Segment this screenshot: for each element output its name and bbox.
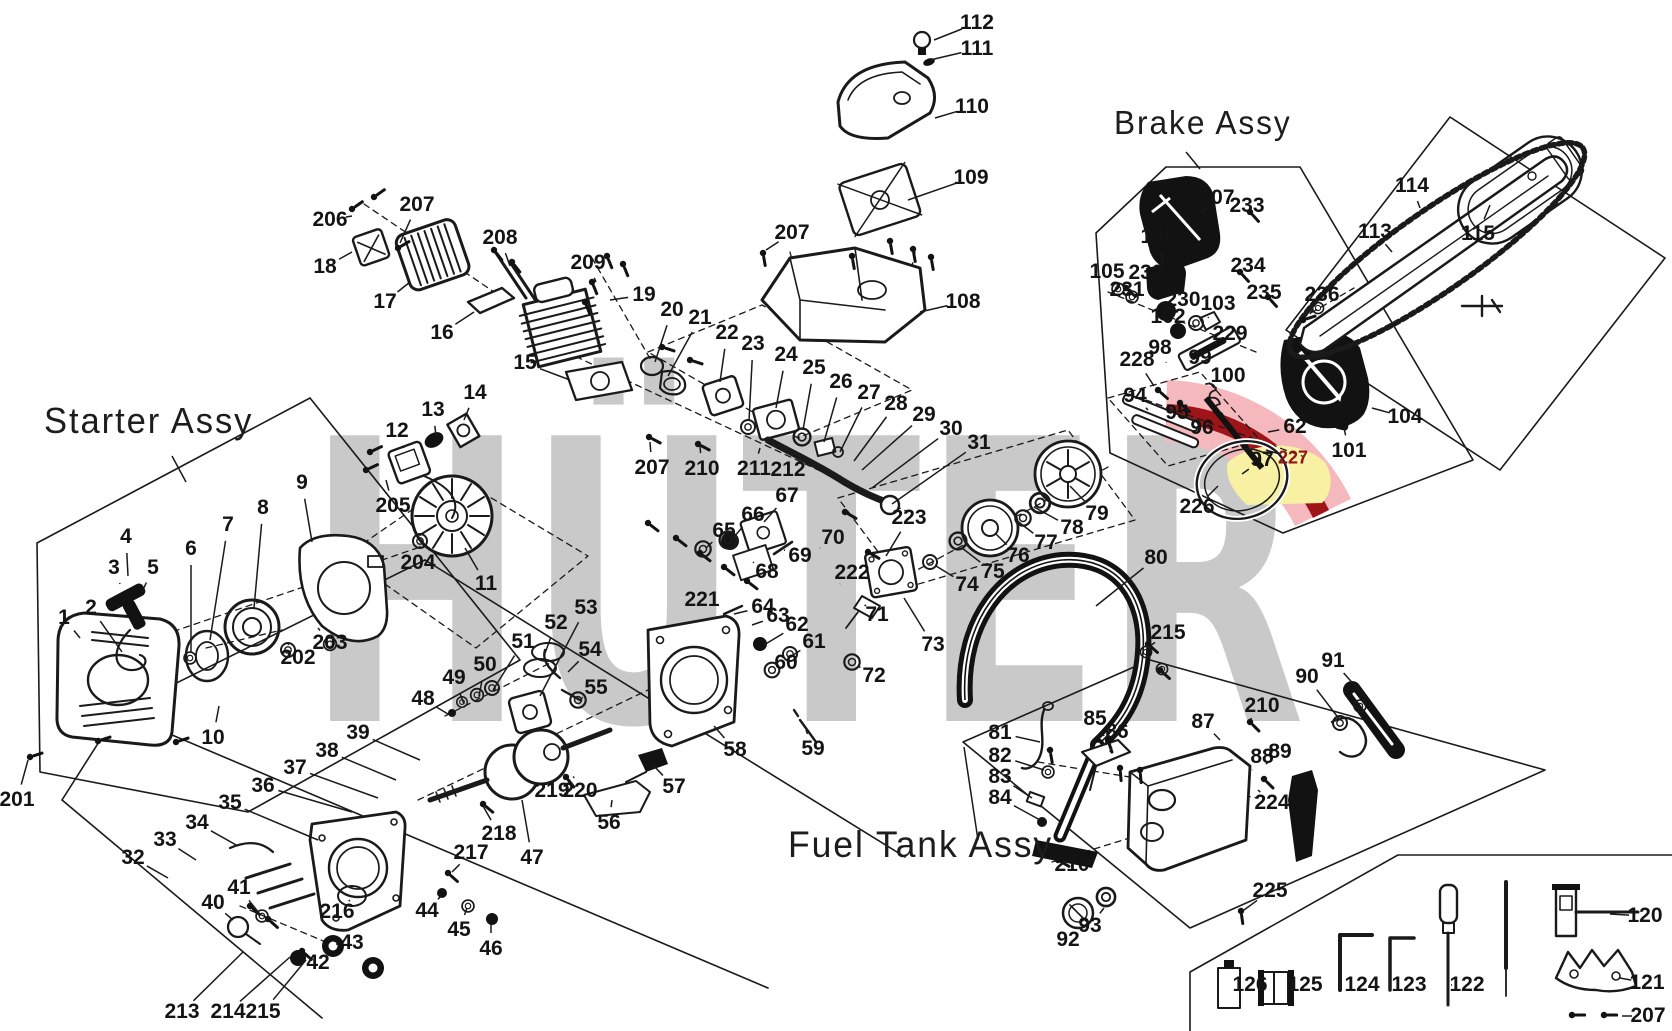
assembly-label-fuel-tank-assy: Fuel Tank Assy: [788, 824, 1053, 866]
part-label-8: 8: [257, 496, 269, 520]
part-label-223: 223: [891, 506, 926, 530]
part-label-90: 90: [1295, 665, 1318, 689]
part-label-108: 108: [945, 290, 980, 314]
part-label-80: 80: [1144, 546, 1167, 570]
part-label-210: 210: [684, 457, 719, 481]
part-label-122: 122: [1449, 973, 1484, 997]
part-label-220: 220: [562, 779, 597, 803]
part-label-205: 205: [375, 494, 410, 518]
part-label-104: 104: [1387, 405, 1422, 429]
part-label-52: 52: [544, 611, 567, 635]
part-label-41: 41: [227, 876, 250, 900]
part-label-79: 79: [1085, 502, 1108, 526]
part-label-114: 114: [1395, 174, 1429, 198]
part-label-30: 30: [939, 417, 962, 441]
part-label-4: 4: [120, 525, 132, 549]
part-label-226: 226: [1179, 495, 1214, 519]
part-label-20: 20: [660, 298, 683, 322]
part-label-67: 67: [775, 484, 798, 508]
part-label-40: 40: [201, 891, 224, 915]
part-label-29: 29: [912, 403, 935, 427]
part-label-77: 77: [1034, 531, 1057, 555]
part-label-59: 59: [801, 737, 824, 761]
part-label-32: 32: [121, 846, 144, 870]
part-label-115: 115: [1461, 222, 1495, 246]
part-label-125: 125: [1287, 973, 1322, 997]
part-label-72: 72: [862, 664, 885, 688]
part-label-93: 93: [1078, 914, 1101, 938]
part-label-215: 215: [1150, 621, 1185, 645]
part-label-36: 36: [251, 774, 274, 798]
part-label-3: 3: [108, 556, 120, 580]
part-label-85: 85: [1083, 707, 1106, 731]
part-label-103: 103: [1200, 292, 1235, 316]
part-label-22: 22: [715, 321, 738, 345]
part-label-62: 62: [1283, 415, 1306, 439]
part-label-94: 94: [1123, 384, 1146, 408]
part-label-210: 210: [1054, 853, 1089, 877]
part-label-17: 17: [373, 290, 396, 314]
part-label-37: 37: [283, 756, 306, 780]
part-label-43: 43: [340, 931, 363, 955]
part-label-51: 51: [511, 630, 534, 654]
part-label-60: 60: [774, 651, 797, 675]
part-label-126: 126: [1232, 973, 1267, 997]
part-label-66: 66: [741, 503, 764, 527]
part-label-235: 235: [1246, 281, 1281, 305]
part-label-201: 201: [0, 788, 35, 812]
part-label-25: 25: [802, 356, 825, 380]
part-label-45: 45: [447, 918, 470, 942]
part-label-10: 10: [201, 726, 224, 750]
part-label-73: 73: [921, 633, 944, 657]
part-label-102: 102: [1150, 305, 1185, 329]
part-label-207: 207: [399, 193, 434, 217]
part-label-236: 236: [1304, 283, 1339, 307]
part-label-91: 91: [1321, 649, 1344, 673]
part-label-202: 202: [280, 646, 315, 670]
part-label-28: 28: [884, 392, 907, 416]
part-label-18: 18: [313, 255, 336, 279]
part-label-207: 207: [634, 456, 669, 480]
part-label-54: 54: [578, 638, 601, 662]
part-label-6: 6: [185, 537, 197, 561]
part-label-101: 101: [1331, 439, 1366, 463]
part-label-96: 96: [1190, 416, 1213, 440]
part-label-228: 228: [1119, 348, 1154, 372]
part-label-21: 21: [688, 306, 711, 330]
part-label-109: 109: [953, 166, 988, 190]
part-label-204: 204: [400, 551, 435, 575]
part-label-49: 49: [442, 666, 465, 690]
assembly-label-brake-assy: Brake Assy: [1114, 104, 1292, 142]
part-labels-layer: 2062071817162081121111101092071082091920…: [0, 0, 1672, 1031]
part-label-76: 76: [1006, 544, 1029, 568]
part-label-232: 232: [1128, 261, 1163, 285]
part-label-217: 217: [453, 841, 488, 865]
part-label-110: 110: [955, 95, 989, 119]
part-label-15: 15: [513, 351, 536, 375]
part-label-213: 213: [164, 1000, 199, 1024]
part-label-123: 123: [1391, 973, 1426, 997]
part-label-42: 42: [306, 951, 329, 975]
part-label-97: 97: [1250, 448, 1273, 472]
part-label-216: 216: [319, 900, 354, 924]
part-label-120: 120: [1627, 904, 1662, 928]
part-label-87: 87: [1191, 710, 1214, 734]
part-label-16: 16: [430, 321, 453, 345]
part-label-203: 203: [312, 631, 347, 655]
part-label-113: 113: [1358, 220, 1392, 244]
part-label-31: 31: [967, 431, 990, 455]
part-label-81: 81: [988, 721, 1011, 745]
part-label-222: 222: [834, 561, 869, 585]
part-label-5: 5: [147, 556, 159, 580]
part-label-206: 206: [312, 208, 347, 232]
part-label-27: 27: [857, 381, 880, 405]
part-label-65: 65: [712, 519, 735, 543]
parts-diagram-page: HÜTER: [0, 0, 1672, 1031]
part-label-23: 23: [741, 332, 764, 356]
part-label-234: 234: [1230, 254, 1265, 278]
part-label-84: 84: [988, 786, 1011, 810]
part-label-55: 55: [584, 676, 607, 700]
part-label-7: 7: [222, 513, 234, 537]
part-label-227: 227: [1278, 448, 1308, 469]
part-label-38: 38: [315, 739, 338, 763]
part-label-215: 215: [245, 1000, 280, 1024]
part-label-26: 26: [829, 370, 852, 394]
part-label-106: 106: [1140, 225, 1175, 249]
part-label-210: 210: [1244, 694, 1279, 718]
part-label-19: 19: [632, 283, 655, 307]
part-label-12: 12: [385, 419, 408, 443]
part-label-208: 208: [482, 226, 517, 250]
part-label-71: 71: [865, 603, 888, 627]
part-label-121: 121: [1629, 971, 1664, 995]
part-label-233: 233: [1229, 194, 1264, 218]
part-label-207: 207: [774, 221, 809, 245]
part-label-92: 92: [1056, 928, 1079, 952]
part-label-34: 34: [185, 811, 208, 835]
part-label-56: 56: [597, 811, 620, 835]
part-label-212: 212: [770, 458, 805, 482]
part-label-99: 99: [1188, 346, 1211, 370]
part-label-2: 2: [85, 596, 97, 620]
part-label-224: 224: [1254, 791, 1289, 815]
part-label-44: 44: [415, 899, 438, 923]
part-label-53: 53: [574, 596, 597, 620]
part-label-74: 74: [955, 573, 978, 597]
part-label-111: 111: [961, 37, 994, 61]
part-label-64: 64: [751, 595, 774, 619]
part-label-86: 86: [1105, 720, 1128, 744]
part-label-33: 33: [153, 828, 176, 852]
part-label-9: 9: [296, 471, 308, 495]
part-label-58: 58: [723, 738, 746, 762]
part-label-48: 48: [411, 687, 434, 711]
part-label-95: 95: [1165, 401, 1188, 425]
part-label-214: 214: [210, 1000, 245, 1024]
part-label-46: 46: [479, 937, 502, 961]
part-label-11: 11: [475, 572, 497, 596]
part-label-50: 50: [473, 653, 496, 677]
part-label-225: 225: [1252, 879, 1287, 903]
part-label-124: 124: [1344, 973, 1379, 997]
part-label-24: 24: [774, 343, 797, 367]
part-label-209: 209: [570, 251, 605, 275]
part-label-39: 39: [346, 721, 369, 745]
part-label-211: 211: [737, 457, 771, 481]
part-label-112: 112: [960, 11, 994, 35]
part-label-13: 13: [421, 398, 444, 422]
part-label-229: 229: [1212, 322, 1247, 346]
part-label-14: 14: [463, 381, 486, 405]
part-label-89: 89: [1268, 740, 1291, 764]
part-label-57: 57: [662, 775, 685, 799]
part-label-207: 207: [1630, 1004, 1665, 1028]
part-label-100: 100: [1210, 364, 1245, 388]
part-label-75: 75: [981, 560, 1004, 584]
part-label-35: 35: [218, 791, 241, 815]
part-label-47: 47: [520, 846, 543, 870]
assembly-label-starter-assy: Starter Assy: [44, 400, 253, 442]
part-label-70: 70: [821, 526, 844, 550]
part-label-68: 68: [755, 560, 778, 584]
part-label-69: 69: [788, 544, 811, 568]
part-label-78: 78: [1060, 516, 1083, 540]
part-label-221: 221: [684, 588, 719, 612]
part-label-1: 1: [58, 606, 70, 630]
